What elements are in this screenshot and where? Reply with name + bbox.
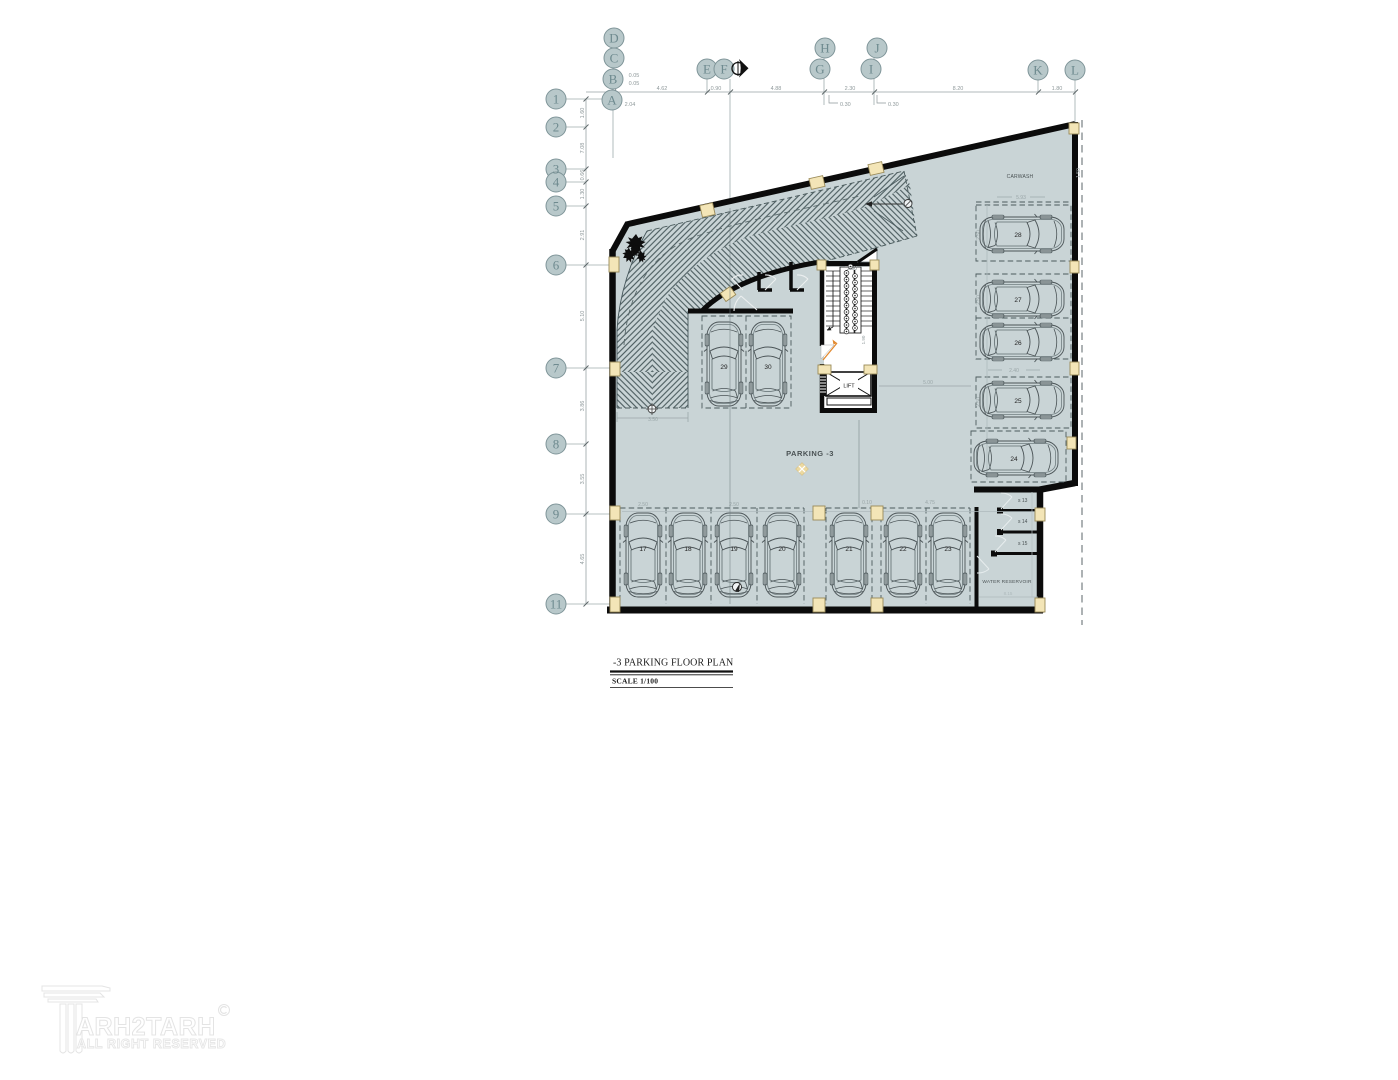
svg-text:1.30: 1.30 — [580, 189, 586, 200]
svg-text:4.65: 4.65 — [580, 554, 586, 565]
svg-text:LIFT: LIFT — [843, 384, 855, 390]
svg-text:4: 4 — [553, 175, 560, 190]
svg-text:20: 20 — [778, 546, 786, 553]
svg-text:24: 24 — [1010, 456, 1018, 463]
svg-text:3.55: 3.55 — [580, 474, 586, 485]
svg-text:2.50: 2.50 — [976, 295, 982, 305]
svg-text:4.88: 4.88 — [771, 86, 782, 92]
svg-text:L: L — [1071, 63, 1079, 78]
svg-text:8: 8 — [553, 437, 560, 452]
svg-text:0.05: 0.05 — [629, 81, 640, 87]
svg-text:H: H — [820, 41, 829, 56]
svg-text:2.30: 2.30 — [845, 86, 856, 92]
svg-text:21: 21 — [845, 546, 853, 553]
svg-text:A: A — [607, 93, 617, 108]
svg-text:F: F — [720, 62, 727, 77]
svg-text:11: 11 — [550, 597, 563, 612]
svg-text:C: C — [610, 51, 619, 66]
svg-text:B: B — [609, 72, 618, 87]
svg-text:5.93: 5.93 — [1016, 195, 1026, 201]
svg-text:0.90: 0.90 — [711, 86, 722, 92]
svg-text:2.50: 2.50 — [976, 230, 982, 240]
svg-text:s 13: s 13 — [1018, 498, 1028, 504]
svg-text:3.86: 3.86 — [580, 401, 586, 412]
svg-text:2.50: 2.50 — [847, 266, 857, 272]
svg-text:22: 22 — [899, 546, 907, 553]
svg-text:1.50: 1.50 — [1076, 168, 1082, 178]
svg-text:J: J — [874, 41, 879, 56]
svg-text:29: 29 — [720, 364, 728, 371]
svg-text:27: 27 — [1014, 297, 1022, 304]
svg-text:1.80: 1.80 — [1052, 86, 1063, 92]
svg-text:7.08: 7.08 — [580, 143, 586, 154]
svg-text:17: 17 — [639, 546, 647, 553]
svg-text:G: G — [815, 62, 824, 77]
svg-text:19: 19 — [730, 546, 738, 553]
svg-text:4.75: 4.75 — [925, 500, 935, 506]
svg-text:s 15: s 15 — [1018, 541, 1028, 547]
svg-text:9: 9 — [553, 507, 560, 522]
svg-text:25: 25 — [1014, 398, 1022, 405]
svg-text:2.50: 2.50 — [729, 502, 739, 508]
svg-text:CARWASH: CARWASH — [1007, 174, 1034, 180]
svg-text:18: 18 — [684, 546, 692, 553]
svg-text:WATER RESERVOIR: WATER RESERVOIR — [982, 579, 1032, 585]
svg-text:5.00: 5.00 — [923, 380, 933, 386]
svg-text:2.04: 2.04 — [625, 102, 636, 108]
svg-text:5.10: 5.10 — [580, 311, 586, 322]
svg-text:K: K — [1033, 63, 1043, 78]
svg-text:1.60: 1.60 — [580, 108, 586, 119]
svg-text:E: E — [703, 62, 711, 77]
svg-text:8.20: 8.20 — [953, 86, 964, 92]
svg-text:1: 1 — [553, 92, 560, 107]
svg-text:2.91: 2.91 — [580, 230, 586, 241]
svg-text:I: I — [869, 62, 873, 77]
svg-text:8.15: 8.15 — [1004, 591, 1013, 596]
svg-text:7: 7 — [553, 361, 560, 376]
svg-text:2.40: 2.40 — [1009, 368, 1019, 374]
svg-text:PARKING -3: PARKING -3 — [786, 449, 834, 458]
svg-text:0.10: 0.10 — [862, 500, 872, 506]
svg-text:26: 26 — [1014, 340, 1022, 347]
svg-text:-3 PARKING FLOOR PLAN: -3 PARKING FLOOR PLAN — [613, 658, 733, 669]
svg-text:0.30: 0.30 — [840, 102, 851, 108]
svg-text:30: 30 — [764, 364, 772, 371]
svg-text:3.50: 3.50 — [648, 417, 658, 423]
svg-text:SCALE 1/100: SCALE 1/100 — [612, 677, 658, 686]
svg-text:6: 6 — [553, 258, 560, 273]
svg-text:2.50: 2.50 — [638, 502, 648, 508]
svg-text:5: 5 — [553, 199, 560, 214]
svg-text:0.66: 0.66 — [580, 170, 586, 181]
svg-text:2: 2 — [553, 120, 560, 135]
svg-text:2.50: 2.50 — [976, 397, 982, 407]
svg-text:1.90: 1.90 — [861, 335, 866, 344]
svg-text:D: D — [609, 31, 618, 46]
svg-text:28: 28 — [1014, 232, 1022, 239]
svg-text:4.62: 4.62 — [657, 86, 668, 92]
svg-text:0.05: 0.05 — [629, 73, 640, 79]
svg-text:23: 23 — [944, 546, 952, 553]
svg-text:0.30: 0.30 — [888, 102, 899, 108]
svg-text:s 14: s 14 — [1018, 519, 1028, 525]
